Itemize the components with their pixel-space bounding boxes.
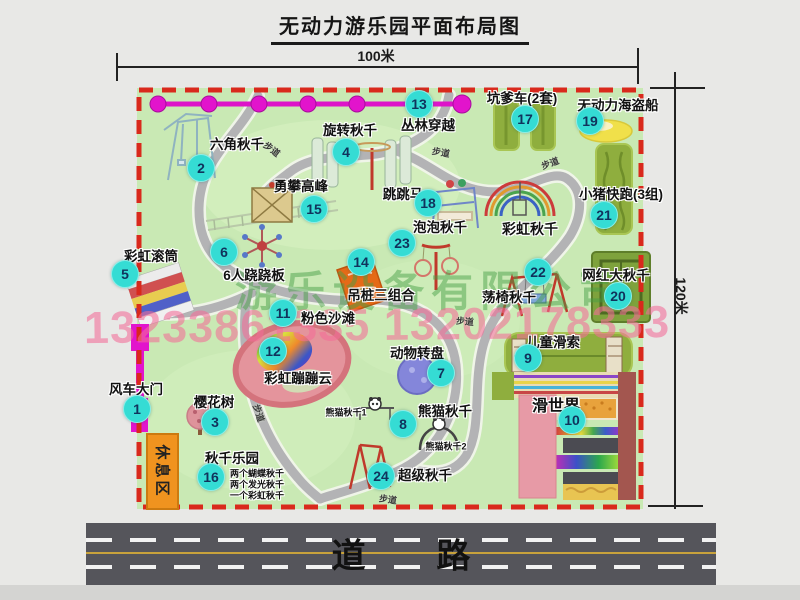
road-label: 道 路 [86,529,716,578]
dimension-tick [116,53,118,81]
dimension-tick [637,48,639,84]
dimension-width-label: 100米 [357,46,394,66]
watermark-phone: 13233861335 13202178333 [84,296,671,354]
dimension-line-top [117,66,638,68]
rest-area: 休息区 [146,433,179,510]
pirate-ship-icon [580,120,632,142]
dimension-height-label: 120米 [671,277,691,314]
animal-turntable-icon [398,356,436,394]
road-shoulder [0,585,800,600]
dimension-tick [650,87,705,89]
rest-area-label: 休息区 [152,444,173,498]
playground-layout-map: 游乐设备有限公司 13233861335 13202178333 休息区 无动力… [0,0,800,600]
road: 道 路 [86,523,716,585]
page-title: 无动力游乐园平面布局图 [0,10,800,45]
piggy-run-icon [596,144,632,234]
dimension-tick [648,505,703,507]
